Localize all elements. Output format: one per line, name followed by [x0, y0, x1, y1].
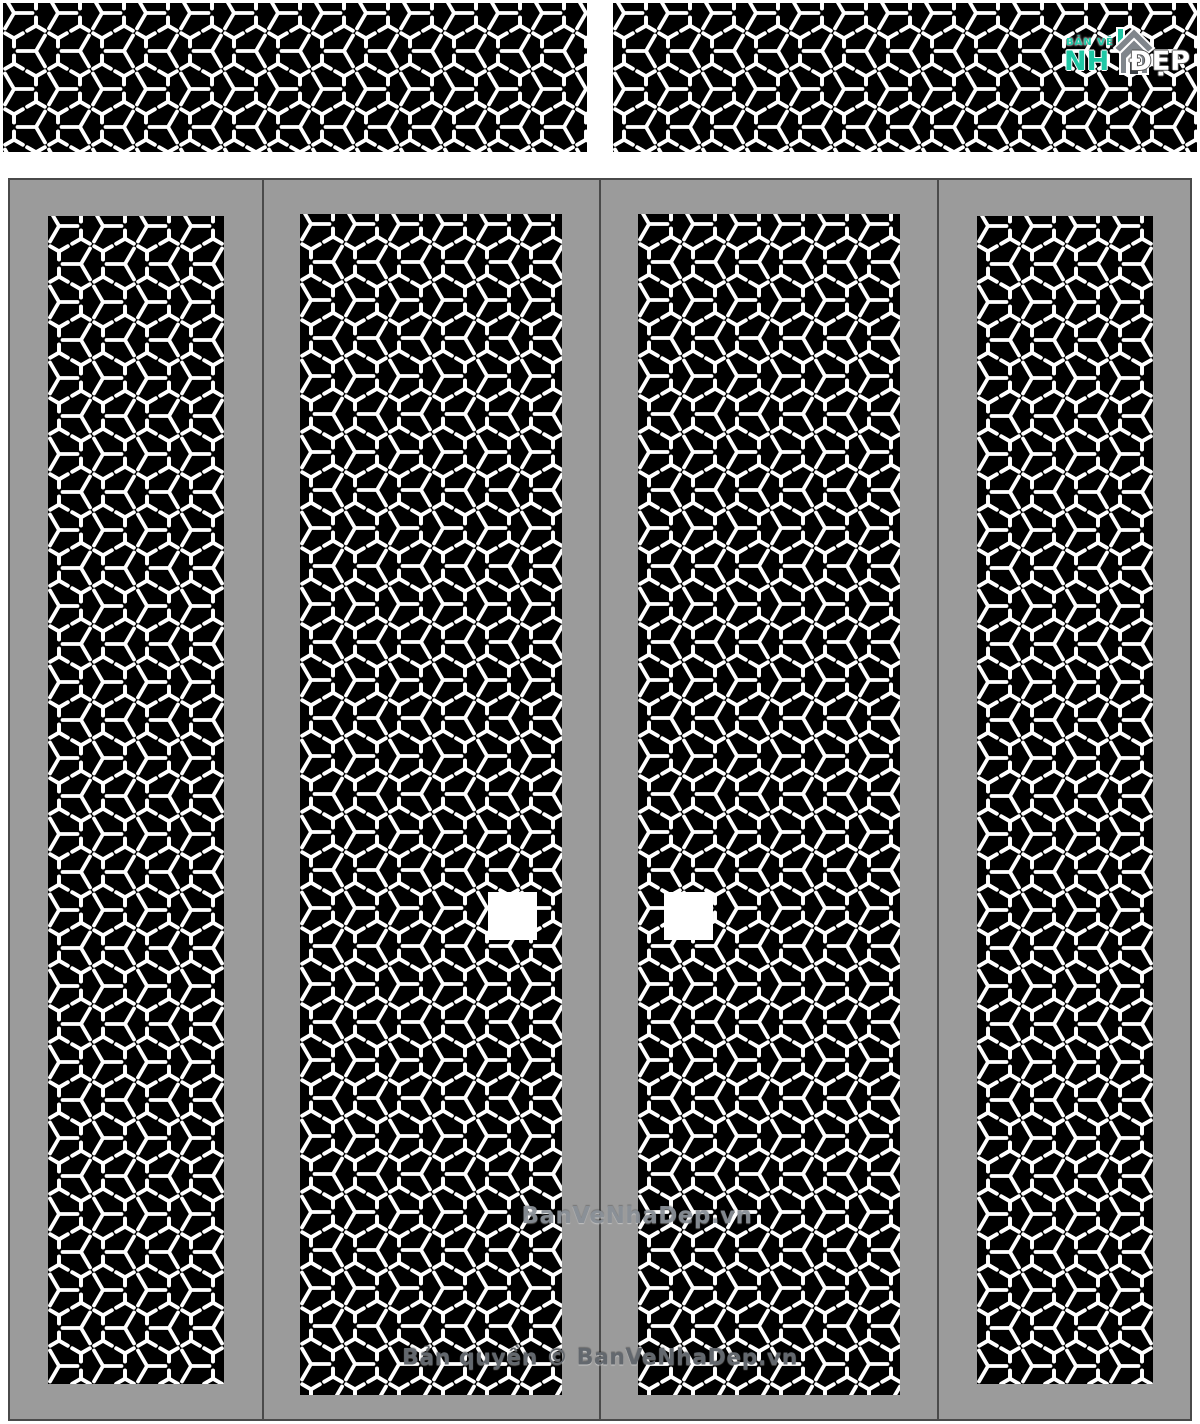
panel-pattern: [977, 216, 1153, 1384]
door-divider-3: [937, 180, 939, 1419]
logo-name-right: ĐẸP: [1129, 48, 1190, 75]
top-rail-left: [3, 3, 587, 152]
door-divider-1: [262, 180, 264, 1419]
rail-pattern: [3, 3, 587, 152]
top-rail-right: BẢN VẼ NH ĐẸP: [613, 3, 1197, 152]
watermark-text: BanVeNhaDep.vn: [522, 1203, 753, 1229]
panel-pattern: [48, 216, 224, 1384]
brand-logo: BẢN VẼ NH ĐẸP: [1060, 7, 1192, 81]
logo-name-left: NH: [1064, 48, 1109, 75]
door-handle-right: [664, 892, 713, 940]
copyright-text: Bản quyền © BanVeNhaDep.vn: [402, 1346, 798, 1371]
door-panel-1: [48, 216, 224, 1384]
door-divider-2: [599, 180, 601, 1419]
door-panel-4: [977, 216, 1153, 1384]
door-frame: BanVeNhaDep.vn Bản quyền © BanVeNhaDep.v…: [8, 178, 1192, 1421]
cnc-drawing-canvas: BẢN VẼ NH ĐẸP: [0, 0, 1200, 1424]
door-handle-left: [488, 892, 537, 940]
logo-name-row: NH ĐẸP: [1060, 48, 1192, 81]
